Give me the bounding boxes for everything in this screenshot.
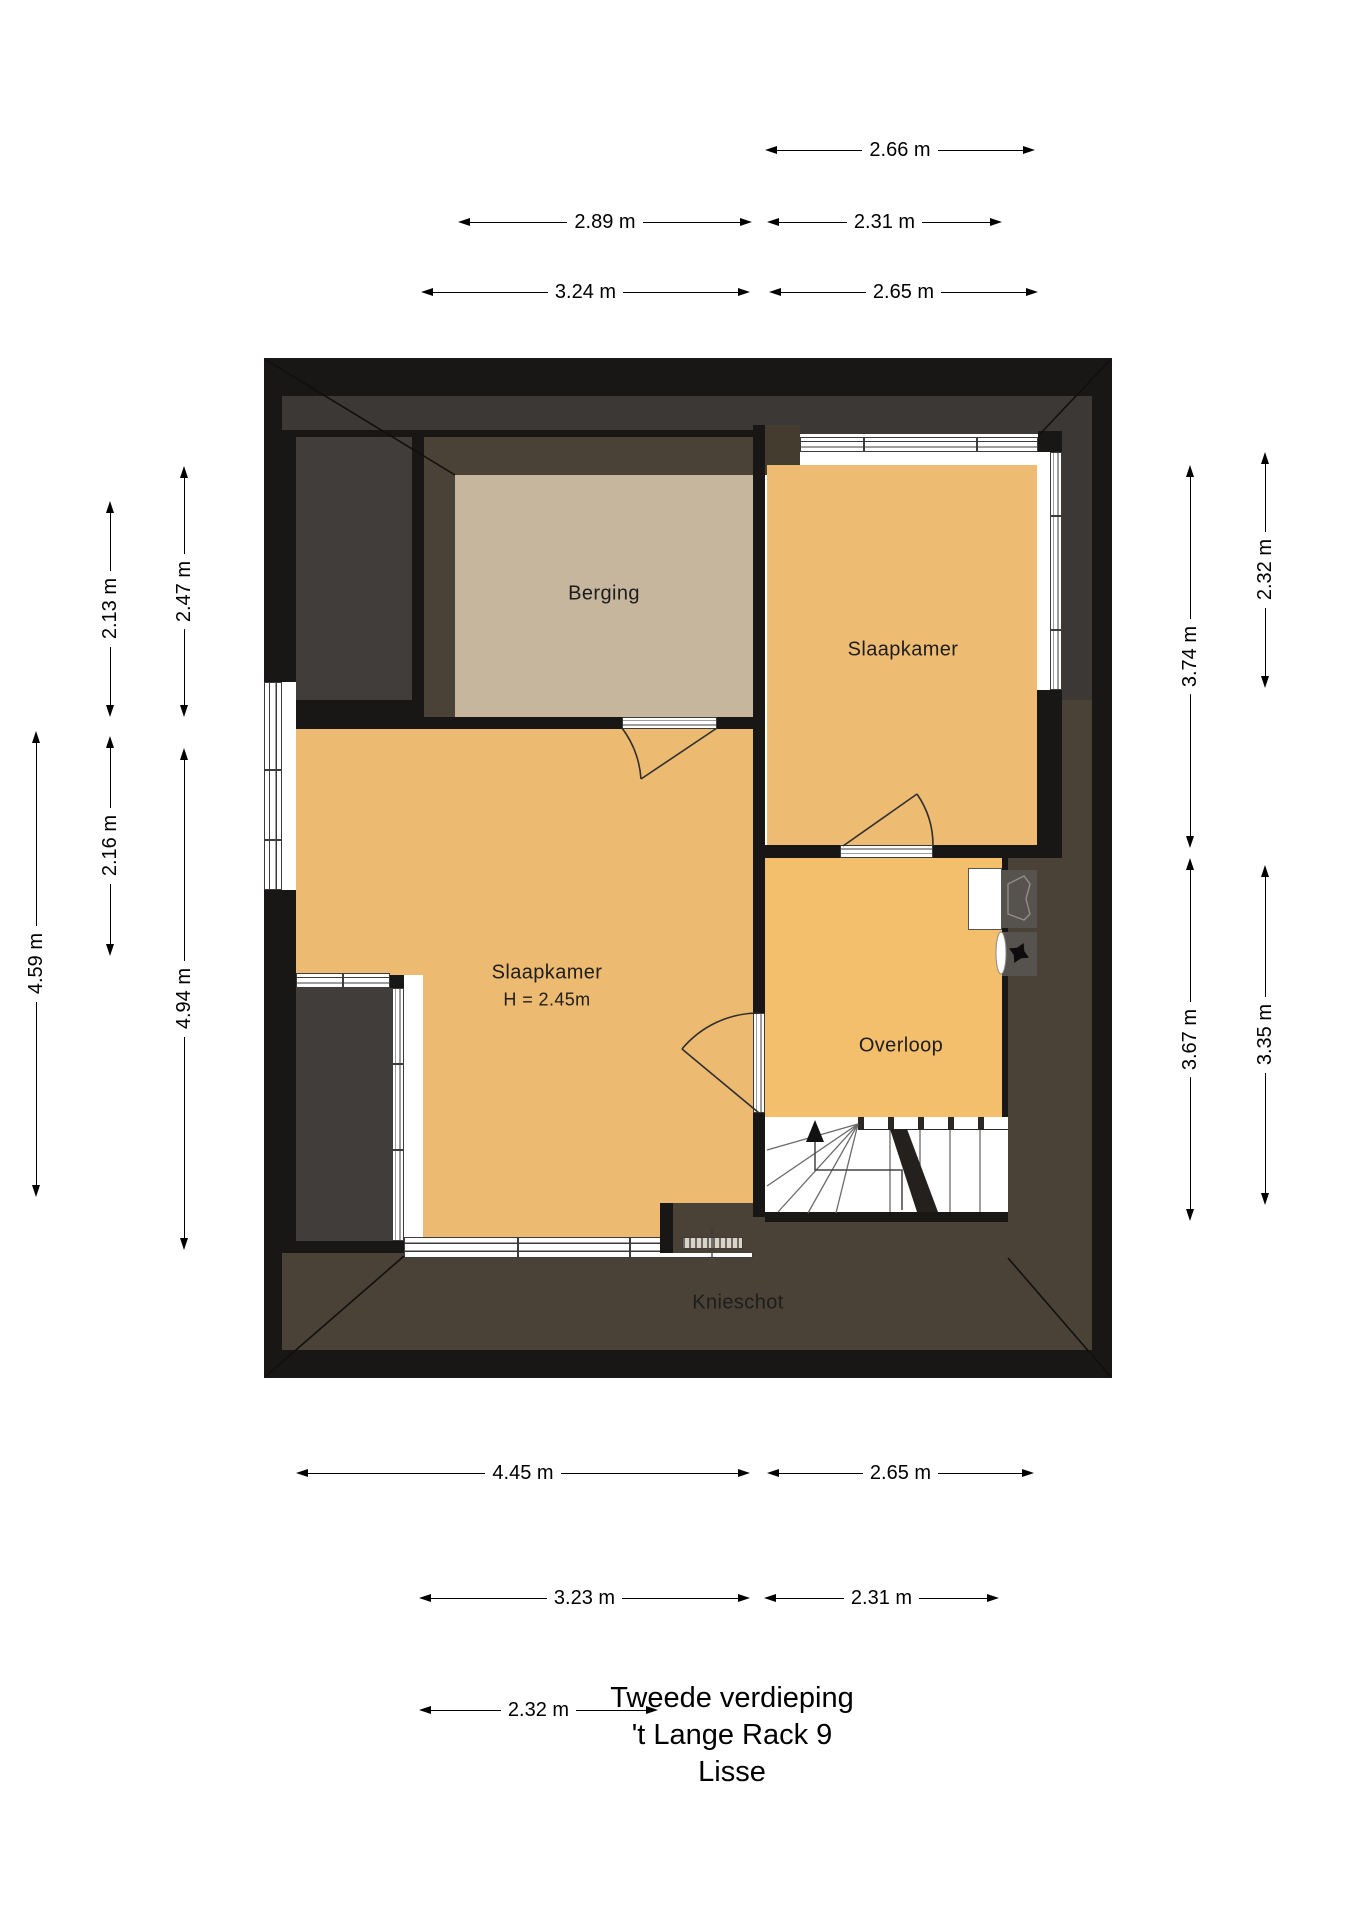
knieschot-label: Knieschot (692, 1292, 783, 1315)
left-window-sill (282, 682, 296, 890)
water-heater-unit (1002, 870, 1037, 928)
overloop-floor (765, 858, 1002, 1117)
slaapkamer-right-label: Slaapkamer (848, 639, 959, 662)
wall-bottom (264, 1350, 1112, 1378)
dimension-vertical: 2.13 m (98, 501, 122, 717)
dimension-horizontal: 3.23 m (419, 1587, 750, 1609)
dimension-vertical: 3.74 m (1178, 465, 1202, 848)
window-bl-right (392, 988, 404, 1241)
dimension-vertical: 3.67 m (1178, 858, 1202, 1221)
stairs-bottom-edge (765, 1212, 1008, 1222)
roof-slope-top (282, 396, 1060, 434)
slaapkamer-left-label: Slaapkamer (492, 962, 603, 985)
below-stairs-brown (765, 1222, 1008, 1253)
dimension-horizontal: 2.65 m (769, 281, 1038, 303)
title-city: Lisse (610, 1754, 853, 1791)
dimension-horizontal: 2.65 m (767, 1462, 1034, 1484)
dimension-horizontal: 4.45 m (296, 1462, 750, 1484)
wall-top (264, 358, 1112, 396)
boiler-unit (968, 868, 1002, 930)
window-bl-top (296, 973, 390, 988)
door-tr-threshold (840, 845, 933, 858)
dimension-vertical: 4.94 m (172, 748, 196, 1250)
berging-slope-band-left (424, 437, 455, 717)
dimension-vertical: 2.47 m (172, 466, 196, 717)
dimension-horizontal: 2.31 m (767, 211, 1002, 233)
title-address: 't Lange Rack 9 (610, 1717, 853, 1754)
wall-below-right-window (1037, 690, 1062, 858)
ventilation-unit (1002, 932, 1037, 976)
sill-bl (404, 975, 423, 1237)
window-top-wall (800, 437, 1038, 452)
plan-title: Tweede verdieping 't Lange Rack 9 Lisse (610, 1680, 853, 1791)
slaapkamer-left-floor-upper (296, 729, 753, 975)
overloop-label: Overloop (859, 1035, 943, 1058)
dimension-horizontal: 2.66 m (765, 139, 1035, 161)
wall-right (1092, 358, 1112, 1378)
stairs-railing (858, 1117, 1008, 1130)
dimension-vertical: 4.59 m (24, 731, 48, 1197)
door-overloop-threshold (753, 1013, 765, 1113)
floor-plan-page: Berging Slaapkamer Slaapkamer H = 2.45m … (0, 0, 1358, 1920)
stairs (765, 1117, 1008, 1212)
dimension-vertical: 2.16 m (98, 736, 122, 956)
door-berging-threshold (622, 717, 717, 729)
berging-label: Berging (568, 583, 640, 606)
window-left-wall (264, 682, 282, 890)
window-right-wall (1050, 452, 1062, 690)
dimension-horizontal: 2.31 m (764, 1587, 999, 1609)
dimension-vertical: 3.35 m (1253, 865, 1277, 1205)
attic-gray-room-bottomleft (296, 988, 392, 1241)
title-floor: Tweede verdieping (610, 1680, 853, 1717)
dimension-vertical: 2.32 m (1253, 452, 1277, 688)
dimension-horizontal: 3.24 m (421, 281, 750, 303)
slaapkamer-left-floor-lower (423, 975, 753, 1237)
step-wall (660, 1203, 673, 1253)
sill-right (1038, 452, 1050, 690)
knieschot-vent (682, 1237, 743, 1249)
tr-corner-block (1038, 431, 1062, 452)
attic-gray-room-topleft (296, 437, 412, 700)
knieschot-bottom-band (282, 1253, 1092, 1350)
roof-slope-right (1060, 396, 1092, 712)
slaapkamer-left-height-note: H = 2.45m (503, 990, 590, 1011)
berging-slope-band-top (424, 437, 755, 475)
dimension-horizontal: 2.89 m (458, 211, 752, 233)
